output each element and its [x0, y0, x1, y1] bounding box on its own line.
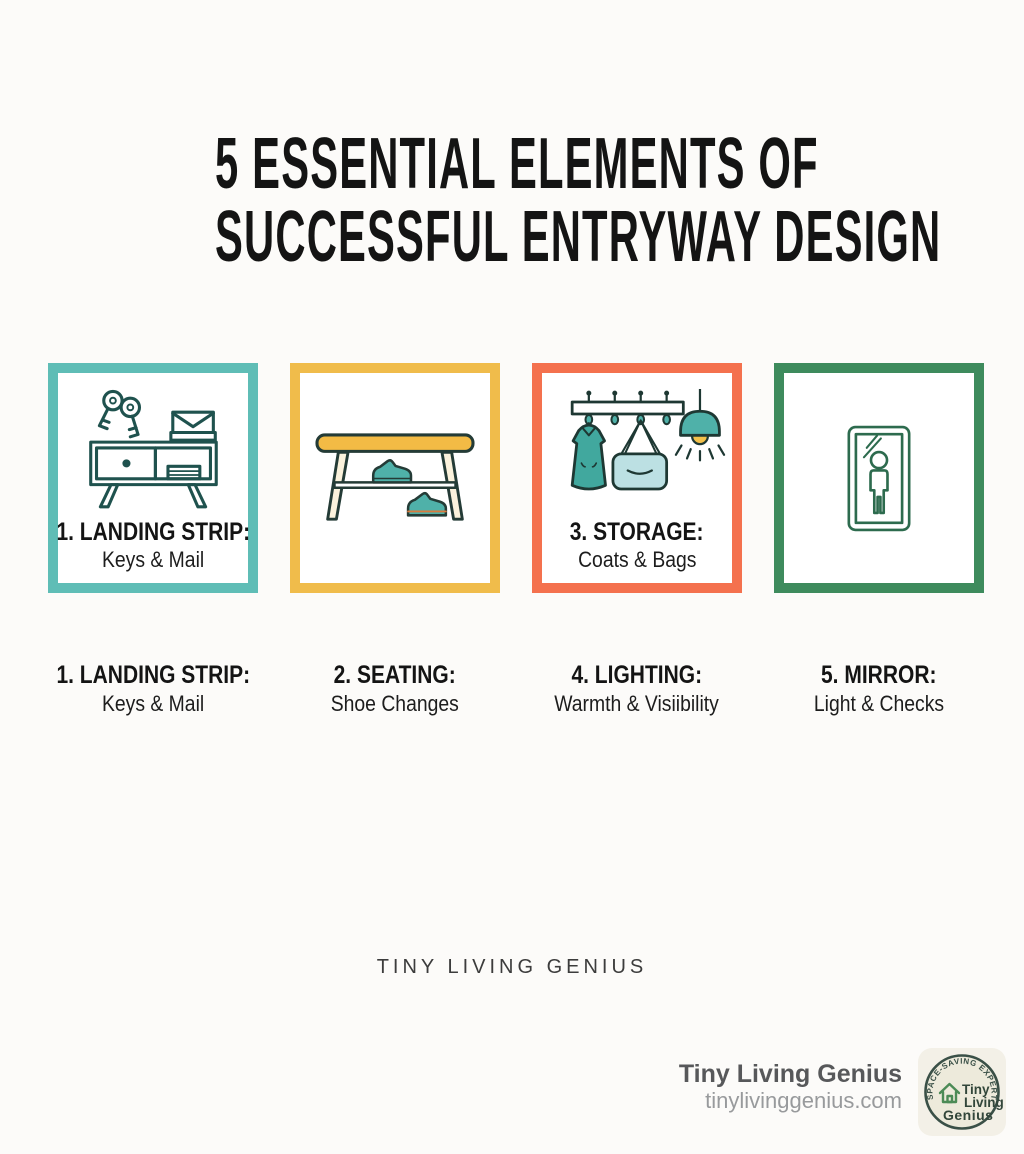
card-storage: 3. STORAGE: Coats & Bags — [532, 363, 742, 593]
footer-brand-name: Tiny Living Genius — [679, 1060, 902, 1088]
brand-badge: SPACE-SAVING EXPERT Tiny Living Genius — [918, 1048, 1006, 1136]
card-icon-wrap — [784, 373, 974, 583]
card-landing-strip: 1. LANDING STRIP: Keys & Mail — [48, 363, 258, 593]
card-sublabel: Keys & Mail — [102, 547, 204, 573]
caption-label: 2. SEATING: — [334, 660, 456, 690]
caption-seating: 2. SEATING: Shoe Changes — [290, 660, 500, 718]
console-table-with-keys-and-mail-icon — [83, 382, 223, 510]
badge-line-3: Genius — [943, 1107, 993, 1123]
caption-label: 1. LANDING STRIP: — [56, 660, 250, 690]
page-title: 5 ESSENTIAL ELEMENTS OF SUCCESSFUL ENTRY… — [0, 128, 1024, 274]
full-length-mirror-with-person-icon — [846, 424, 912, 533]
card-icon-wrap — [542, 373, 732, 518]
card-label: 3. STORAGE: — [570, 518, 704, 547]
card-label: 1. LANDING STRIP: — [56, 518, 250, 547]
caption-landing-strip: 1. LANDING STRIP: Keys & Mail — [48, 660, 258, 718]
caption-sublabel: Light & Checks — [814, 690, 944, 718]
caption-label: 5. MIRROR: — [821, 660, 937, 690]
card-icon-wrap — [300, 373, 490, 583]
card-seating — [290, 363, 500, 593]
caption-lighting: 4. LIGHTING: Warmth & Visiibility — [532, 660, 742, 718]
footer: Tiny Living Genius tinylivinggenius.com … — [679, 1048, 1006, 1136]
caption-sublabel: Warmth & Visiibility — [555, 690, 720, 718]
card-mirror — [774, 363, 984, 593]
captions-row: 1. LANDING STRIP: Keys & Mail 2. SEATING… — [48, 660, 984, 718]
caption-mirror: 5. MIRROR: Light & Checks — [774, 660, 984, 718]
caption-sublabel: Shoe Changes — [331, 690, 459, 718]
title-line-2: SUCCESSFUL ENTRYWAY DESIGN — [215, 201, 809, 274]
caption-label: 4. LIGHTING: — [572, 660, 703, 690]
card-sublabel: Coats & Bags — [578, 547, 696, 573]
entryway-infographic: 5 ESSENTIAL ELEMENTS OF SUCCESSFUL ENTRY… — [0, 0, 1024, 1154]
cards-row: 1. LANDING STRIP: Keys & Mail — [48, 363, 984, 593]
title-line-1: 5 ESSENTIAL ELEMENTS OF — [215, 128, 809, 201]
footer-brand-block: Tiny Living Genius tinylivinggenius.com — [679, 1060, 902, 1114]
caption-sublabel: Keys & Mail — [102, 690, 204, 718]
coat-rack-bag-and-pendant-lamp-icon — [546, 389, 728, 502]
card-icon-wrap — [58, 373, 248, 518]
footer-website: tinylivinggenius.com — [679, 1088, 902, 1114]
brand-badge-logo: SPACE-SAVING EXPERT Tiny Living Genius — [918, 1048, 1006, 1136]
bench-with-shoes-icon — [315, 432, 475, 525]
watermark-text: TINY LIVING GENIUS — [0, 956, 1024, 979]
